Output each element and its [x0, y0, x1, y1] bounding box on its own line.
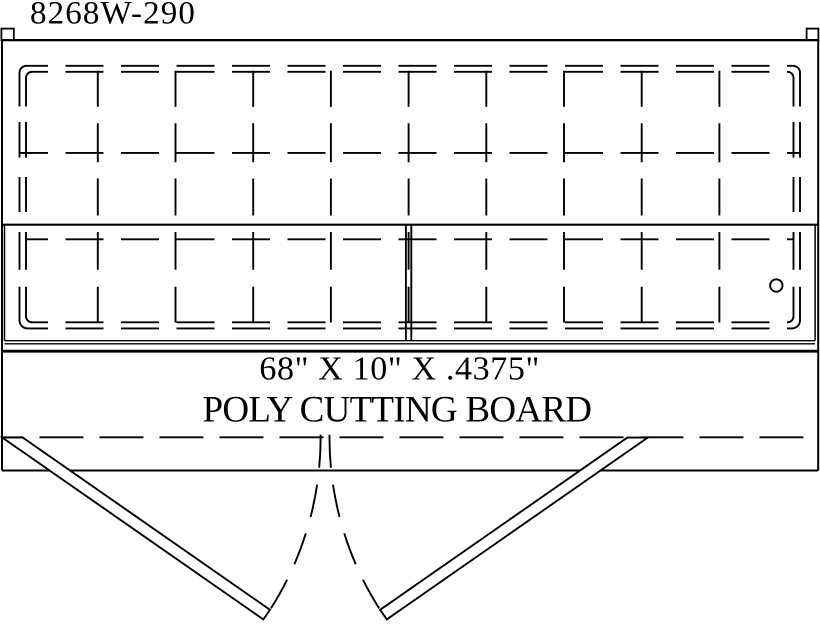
svg-text:8268W-290: 8268W-290 [30, 0, 195, 32]
svg-text:POLY CUTTING BOARD: POLY CUTTING BOARD [203, 389, 593, 430]
svg-text:68" X 10" X .4375": 68" X 10" X .4375" [259, 351, 539, 388]
